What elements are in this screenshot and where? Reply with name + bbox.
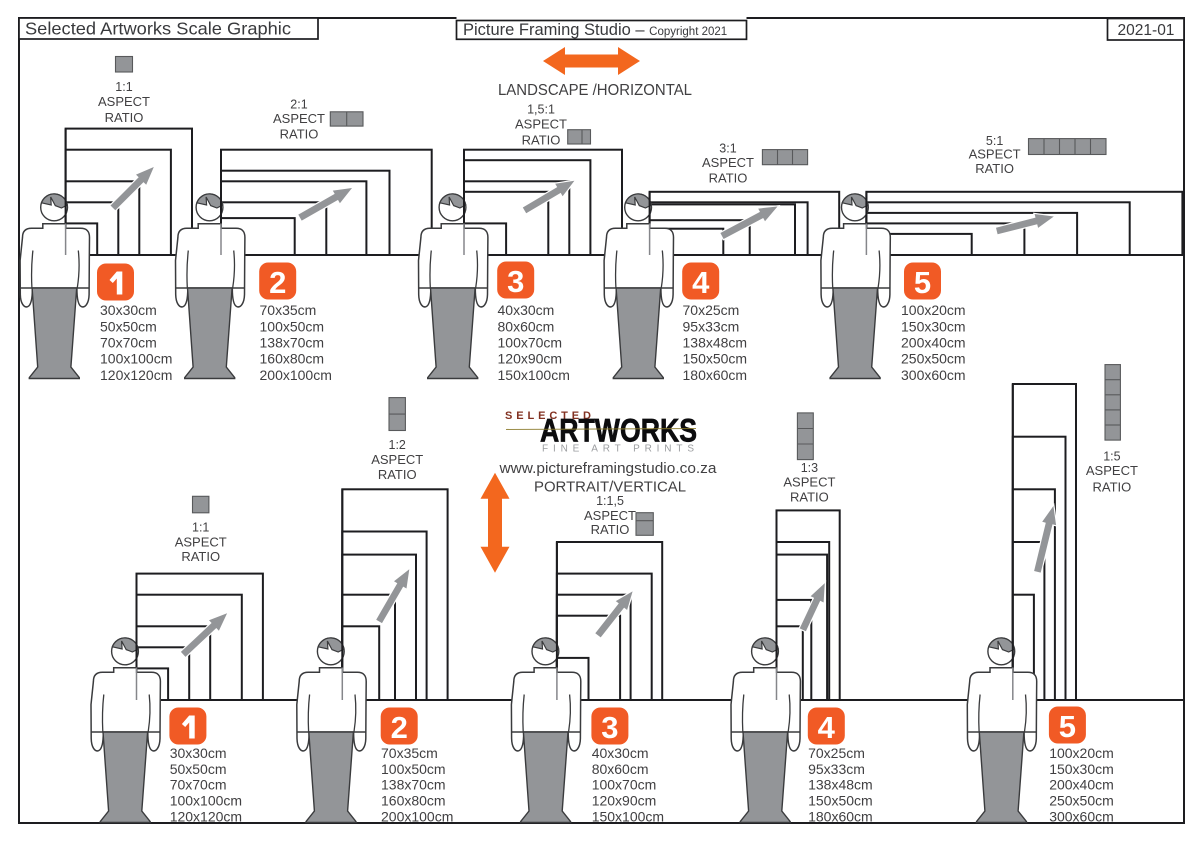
svg-text:138x48cm: 138x48cm	[808, 777, 873, 793]
svg-text:100x50cm: 100x50cm	[260, 318, 325, 334]
svg-text:180x60cm: 180x60cm	[808, 809, 873, 825]
svg-text:Selected Artworks Scale Graphi: Selected Artworks Scale Graphic	[25, 19, 291, 39]
svg-text:150x50cm: 150x50cm	[808, 793, 873, 809]
svg-text:2: 2	[391, 710, 408, 745]
svg-text:200x40cm: 200x40cm	[1049, 777, 1114, 793]
svg-text:1:1: 1:1	[192, 520, 209, 534]
svg-text:RATIO: RATIO	[591, 522, 630, 537]
svg-text:70x70cm: 70x70cm	[170, 777, 227, 793]
svg-text:ASPECT: ASPECT	[98, 94, 150, 109]
svg-text:100x20cm: 100x20cm	[901, 302, 966, 318]
svg-text:3: 3	[507, 264, 524, 299]
svg-text:1:1: 1:1	[115, 80, 132, 94]
svg-text:95x33cm: 95x33cm	[808, 761, 865, 777]
svg-text:5: 5	[914, 265, 931, 300]
svg-text:150x30cm: 150x30cm	[1049, 761, 1114, 777]
svg-text:ASPECT: ASPECT	[515, 117, 567, 132]
svg-text:ASPECT: ASPECT	[783, 475, 835, 490]
svg-text:FINE ART PRINTS: FINE ART PRINTS	[542, 444, 694, 455]
svg-text:40x30cm: 40x30cm	[592, 745, 649, 761]
svg-text:70x25cm: 70x25cm	[683, 302, 740, 318]
svg-text:5: 5	[1059, 709, 1076, 744]
svg-text:LANDSCAPE /HORIZONTAL: LANDSCAPE /HORIZONTAL	[498, 82, 692, 99]
svg-text:160x80cm: 160x80cm	[260, 351, 325, 367]
svg-text:95x33cm: 95x33cm	[683, 318, 740, 334]
svg-text:ASPECT: ASPECT	[371, 452, 423, 467]
svg-text:RATIO: RATIO	[1093, 480, 1132, 495]
svg-text:RATIO: RATIO	[280, 127, 319, 142]
svg-text:1,5:1: 1,5:1	[527, 102, 555, 116]
svg-text:RATIO: RATIO	[181, 549, 220, 564]
svg-text:250x50cm: 250x50cm	[1049, 793, 1114, 809]
svg-text:ASPECT: ASPECT	[969, 146, 1021, 161]
svg-text:1:1,5: 1:1,5	[596, 494, 624, 508]
svg-text:70x35cm: 70x35cm	[381, 745, 438, 761]
svg-text:138x48cm: 138x48cm	[683, 335, 748, 351]
svg-text:300x60cm: 300x60cm	[1049, 809, 1114, 825]
svg-text:www.pictureframingstudio.co.za: www.pictureframingstudio.co.za	[498, 460, 717, 477]
svg-text:2:1: 2:1	[290, 97, 307, 111]
svg-text:70x35cm: 70x35cm	[260, 302, 317, 318]
svg-text:ASPECT: ASPECT	[584, 508, 636, 523]
svg-text:70x25cm: 70x25cm	[808, 745, 865, 761]
svg-text:250x50cm: 250x50cm	[901, 351, 966, 367]
svg-text:120x120cm: 120x120cm	[100, 367, 172, 383]
svg-text:120x90cm: 120x90cm	[592, 793, 657, 809]
svg-text:160x80cm: 160x80cm	[381, 793, 446, 809]
svg-text:40x30cm: 40x30cm	[498, 302, 555, 318]
svg-text:RATIO: RATIO	[790, 489, 829, 504]
svg-text:3:1: 3:1	[719, 142, 736, 156]
svg-text:ASPECT: ASPECT	[702, 155, 754, 170]
svg-text:100x70cm: 100x70cm	[592, 777, 657, 793]
svg-text:4: 4	[818, 710, 836, 745]
svg-text:RATIO: RATIO	[522, 133, 561, 148]
svg-text:1:5: 1:5	[1103, 450, 1120, 464]
svg-text:ASPECT: ASPECT	[1086, 463, 1138, 478]
svg-text:RATIO: RATIO	[105, 110, 144, 125]
svg-text:RATIO: RATIO	[378, 467, 417, 482]
svg-text:30x30cm: 30x30cm	[100, 302, 157, 318]
svg-text:2021-01: 2021-01	[1118, 22, 1175, 39]
svg-text:100x100cm: 100x100cm	[100, 351, 172, 367]
svg-text:100x70cm: 100x70cm	[498, 335, 563, 351]
svg-text:120x120cm: 120x120cm	[170, 809, 242, 825]
svg-text:150x100cm: 150x100cm	[592, 809, 664, 825]
svg-text:30x30cm: 30x30cm	[170, 745, 227, 761]
svg-text:150x100cm: 150x100cm	[498, 367, 570, 383]
svg-text:ASPECT: ASPECT	[273, 111, 325, 126]
svg-text:100x20cm: 100x20cm	[1049, 745, 1114, 761]
svg-text:300x60cm: 300x60cm	[901, 367, 966, 383]
svg-text:138x70cm: 138x70cm	[260, 335, 325, 351]
svg-text:4: 4	[692, 265, 710, 300]
svg-text:2: 2	[269, 265, 286, 300]
svg-text:PORTRAIT/VERTICAL: PORTRAIT/VERTICAL	[534, 479, 686, 496]
svg-text:1:3: 1:3	[801, 461, 818, 475]
svg-text:150x50cm: 150x50cm	[683, 351, 748, 367]
svg-text:80x60cm: 80x60cm	[498, 318, 555, 334]
svg-text:138x70cm: 138x70cm	[381, 777, 446, 793]
svg-text:50x50cm: 50x50cm	[170, 761, 227, 777]
svg-text:3: 3	[601, 710, 618, 745]
svg-text:RATIO: RATIO	[709, 170, 748, 185]
svg-text:50x50cm: 50x50cm	[100, 318, 157, 334]
svg-text:70x70cm: 70x70cm	[100, 335, 157, 351]
svg-text:ASPECT: ASPECT	[175, 534, 227, 549]
svg-text:180x60cm: 180x60cm	[683, 367, 748, 383]
svg-text:200x40cm: 200x40cm	[901, 335, 966, 351]
svg-text:120x90cm: 120x90cm	[498, 351, 563, 367]
svg-text:80x60cm: 80x60cm	[592, 761, 649, 777]
svg-text:100x50cm: 100x50cm	[381, 761, 446, 777]
svg-text:1:2: 1:2	[389, 438, 406, 452]
svg-text:RATIO: RATIO	[975, 161, 1014, 176]
svg-text:200x100cm: 200x100cm	[260, 367, 332, 383]
svg-text:100x100cm: 100x100cm	[170, 793, 242, 809]
svg-text:200x100cm: 200x100cm	[381, 809, 453, 825]
svg-text:150x30cm: 150x30cm	[901, 318, 966, 334]
